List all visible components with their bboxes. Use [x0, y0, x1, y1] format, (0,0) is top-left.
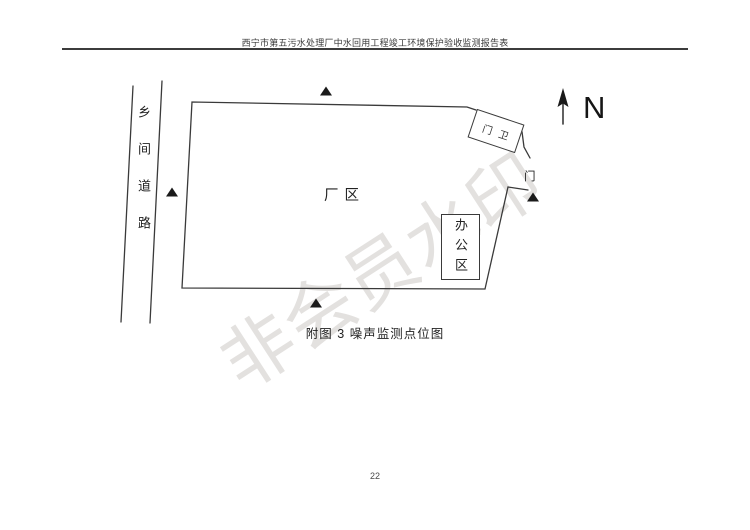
header-rule [62, 48, 688, 50]
figure-caption: 附图 3 噪声监测点位图 [0, 323, 750, 342]
monitoring-point-marker-east [527, 193, 539, 202]
north-label: N [583, 90, 605, 126]
gatehouse-label: 门卫 [474, 117, 518, 144]
factory-area-label: 厂区 [324, 184, 365, 205]
monitoring-point-marker-west [166, 188, 178, 197]
gate-label: 门 [524, 168, 536, 184]
site-plan-diagram [0, 0, 750, 530]
road-line-left [121, 86, 133, 322]
document-page: 西宁市第五污水处理厂中水回用工程竣工环境保护验收监测报告表 非会员水印 乡间道路… [0, 0, 750, 530]
monitoring-point-marker-north [320, 87, 332, 96]
monitoring-point-marker-south [310, 299, 322, 308]
office-area-box: 办公区 [441, 214, 480, 280]
office-area-label: 办公区 [451, 215, 470, 279]
road-label: 乡间道路 [134, 105, 153, 253]
page-number: 22 [0, 471, 750, 481]
